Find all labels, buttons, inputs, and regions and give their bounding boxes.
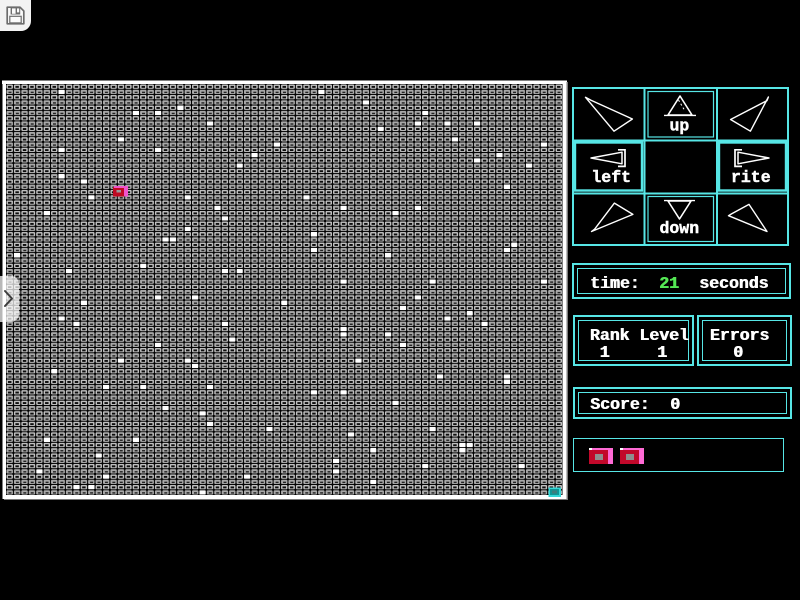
svg-text:down: down <box>660 219 700 238</box>
svg-text:rite: rite <box>731 168 771 187</box>
svg-text:left: left <box>591 168 631 187</box>
svg-text:up: up <box>670 117 690 136</box>
